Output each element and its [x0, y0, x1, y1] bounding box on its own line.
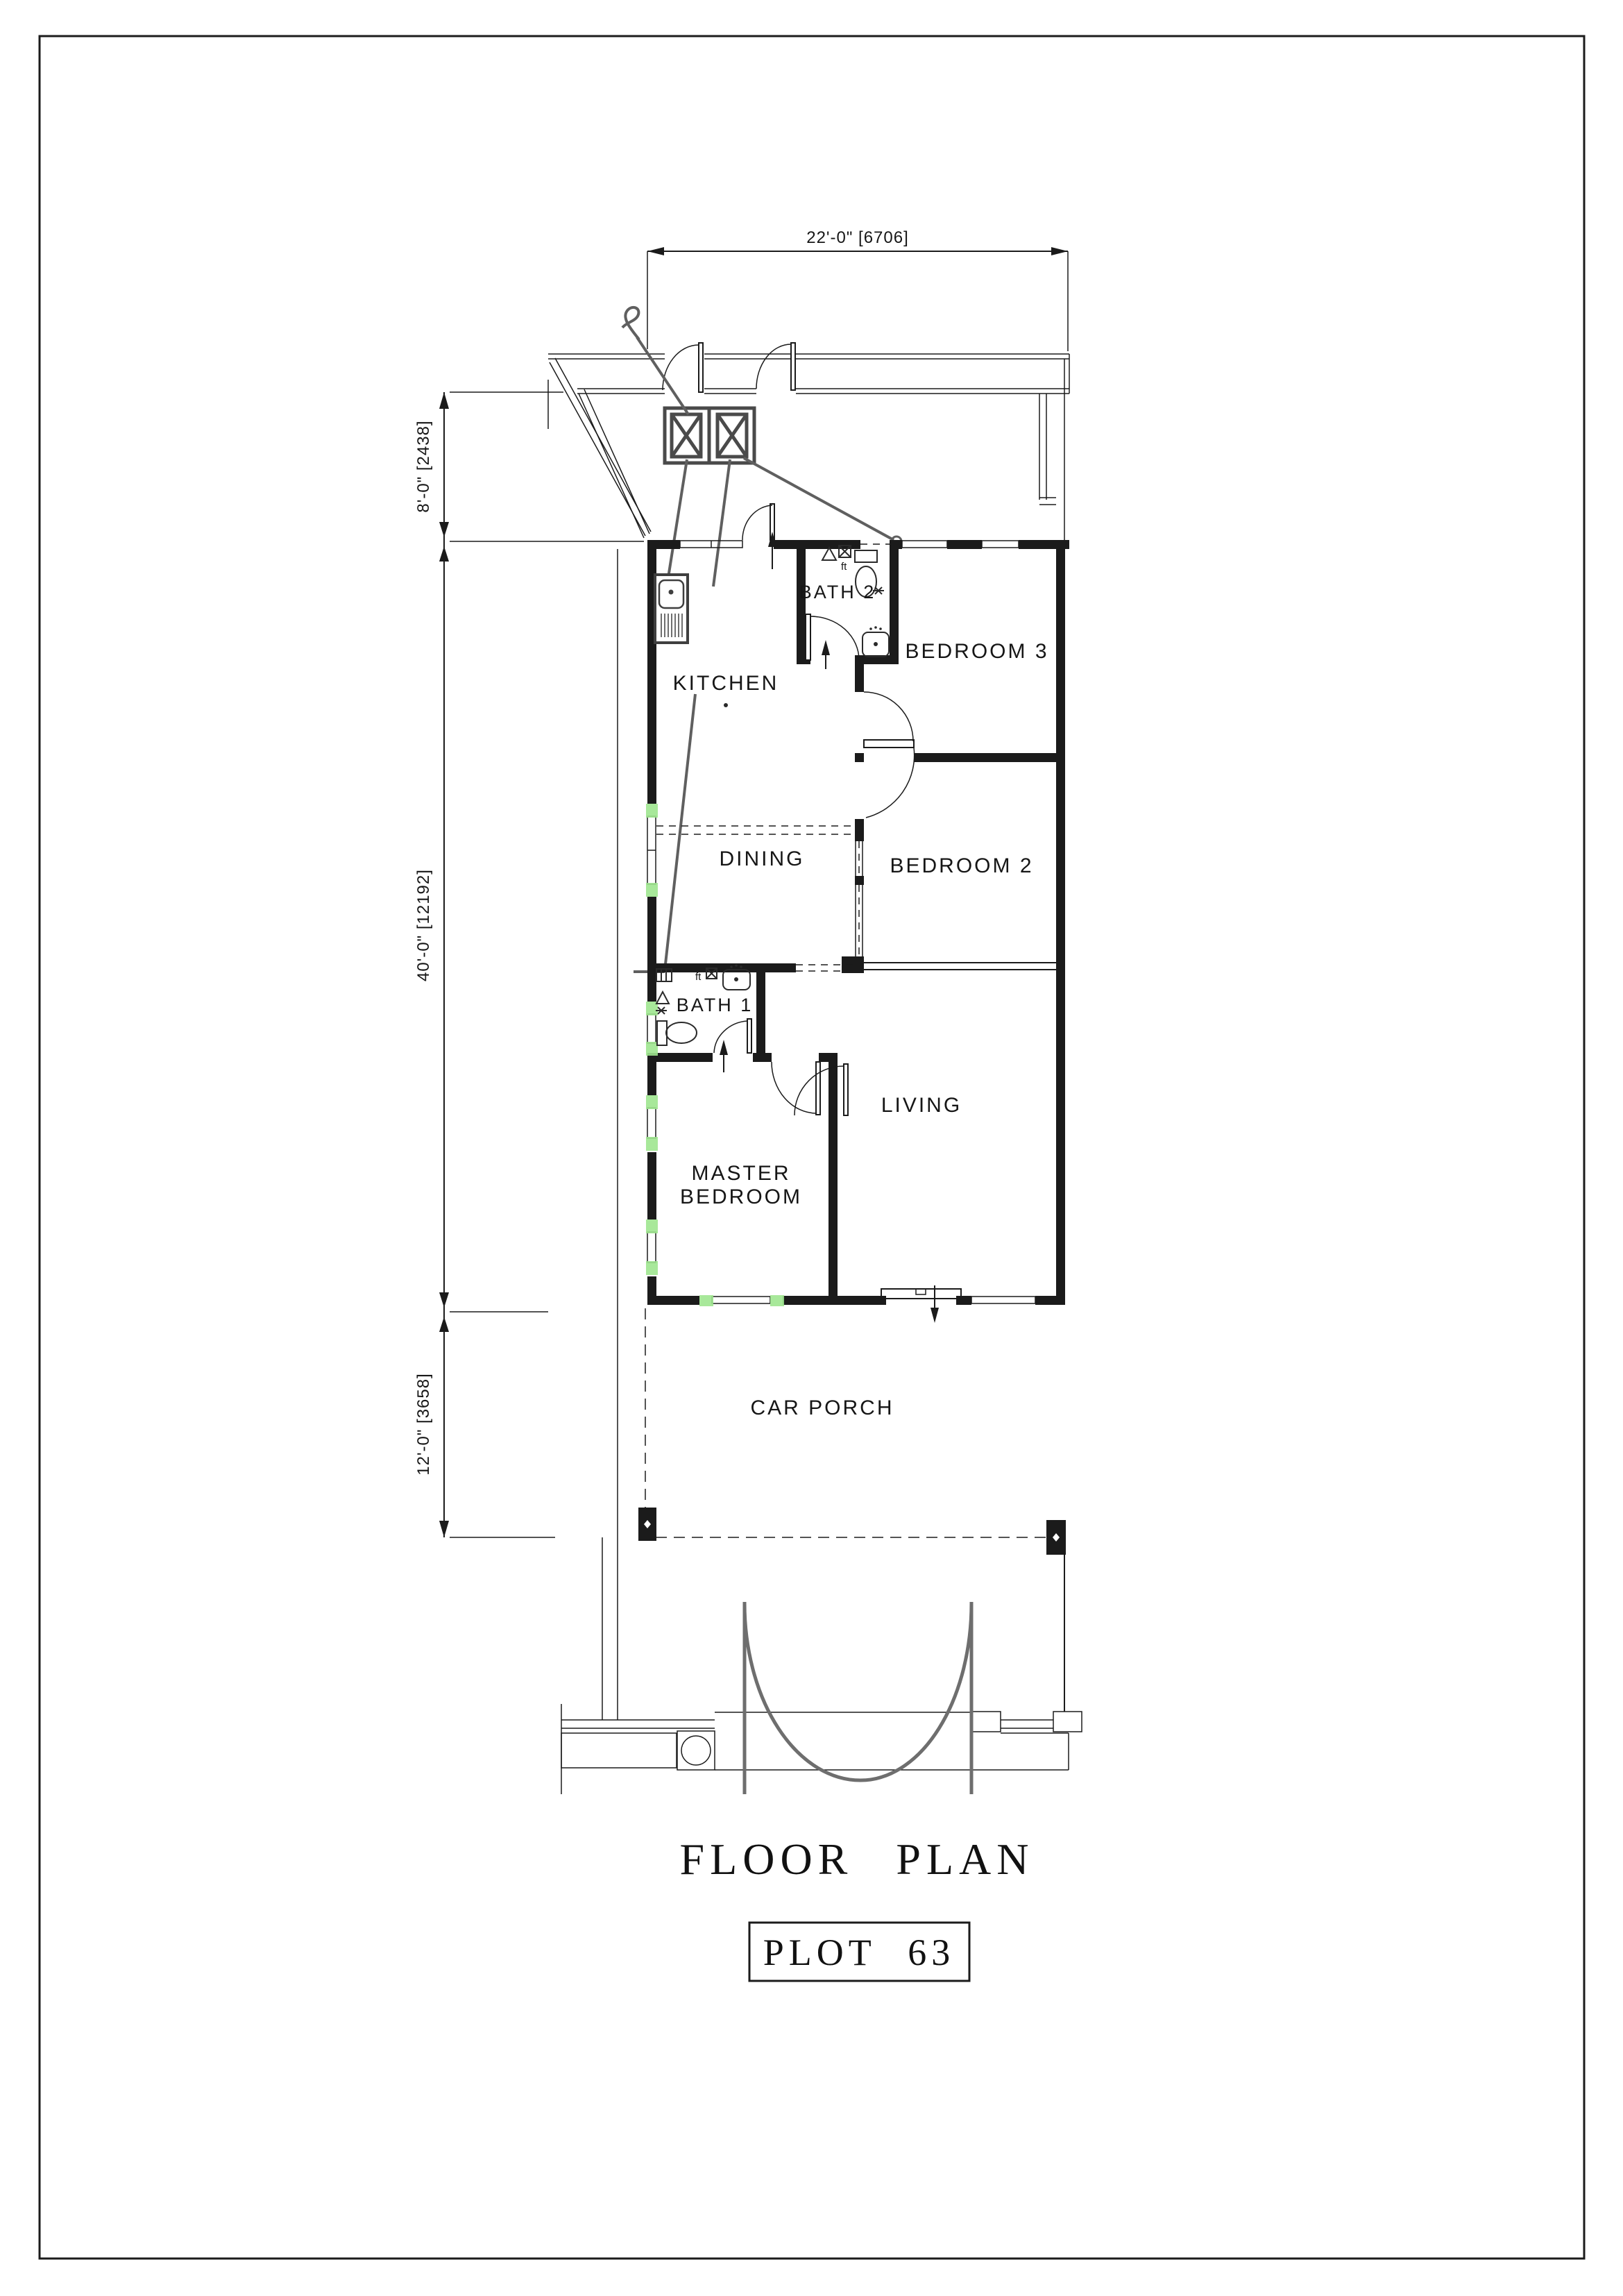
room-label-car-porch: CAR PORCH — [750, 1396, 894, 1419]
bath1-toilet — [657, 1021, 697, 1045]
car-porch-outline — [638, 1308, 1066, 1555]
site-boundary — [548, 343, 1082, 1794]
dim-left-house-depth: 40'-0" [12192] — [414, 869, 433, 981]
room-label-kitchen: KITCHEN — [673, 672, 779, 695]
bath1-ft-label: ft — [695, 971, 702, 983]
sheet-frame — [40, 36, 1584, 2259]
room-label-living: LIVING — [881, 1094, 962, 1117]
room-labels: KITCHEN BATH 2 BEDROOM 3 DINING BEDROOM … — [673, 582, 1049, 1419]
drawing-title: FLOOR PLAN — [680, 1834, 1035, 1884]
front-gate — [745, 1602, 971, 1794]
bath2-ft-label: ft — [841, 561, 847, 573]
room-label-bath1: BATH 1 — [677, 995, 754, 1015]
floor-plan-drawing: 22'-0" [6706] 8'-0" [2438] 40'-0" [12192… — [0, 0, 1623, 2296]
title-block: FLOOR PLAN PLOT 63 — [680, 1834, 1035, 1981]
dimension-top: 22'-0" [6706] — [647, 228, 1068, 351]
dim-left-rear-setback: 8'-0" [2438] — [414, 420, 433, 512]
dim-left-porch-depth: 12'-0" [3658] — [414, 1373, 433, 1476]
dimension-left: 8'-0" [2438] 40'-0" [12192] 12'-0" [3658… — [414, 392, 644, 1537]
dim-top-width: 22'-0" [6706] — [806, 228, 909, 247]
room-label-master-line2: BEDROOM — [680, 1185, 802, 1208]
kitchen-dot-mark — [724, 703, 728, 707]
room-label-bath2: BATH 2 — [799, 582, 876, 602]
room-label-bedroom3: BEDROOM 3 — [905, 640, 1048, 663]
septic-tank-boxes — [665, 408, 754, 463]
room-label-dining: DINING — [720, 847, 805, 870]
kitchen-sink — [655, 575, 688, 643]
plot-label: PLOT 63 — [763, 1932, 955, 1973]
room-label-bedroom2: BEDROOM 2 — [890, 854, 1033, 877]
room-label-master-line1: MASTER — [691, 1162, 790, 1185]
bath2-basin — [863, 626, 889, 657]
